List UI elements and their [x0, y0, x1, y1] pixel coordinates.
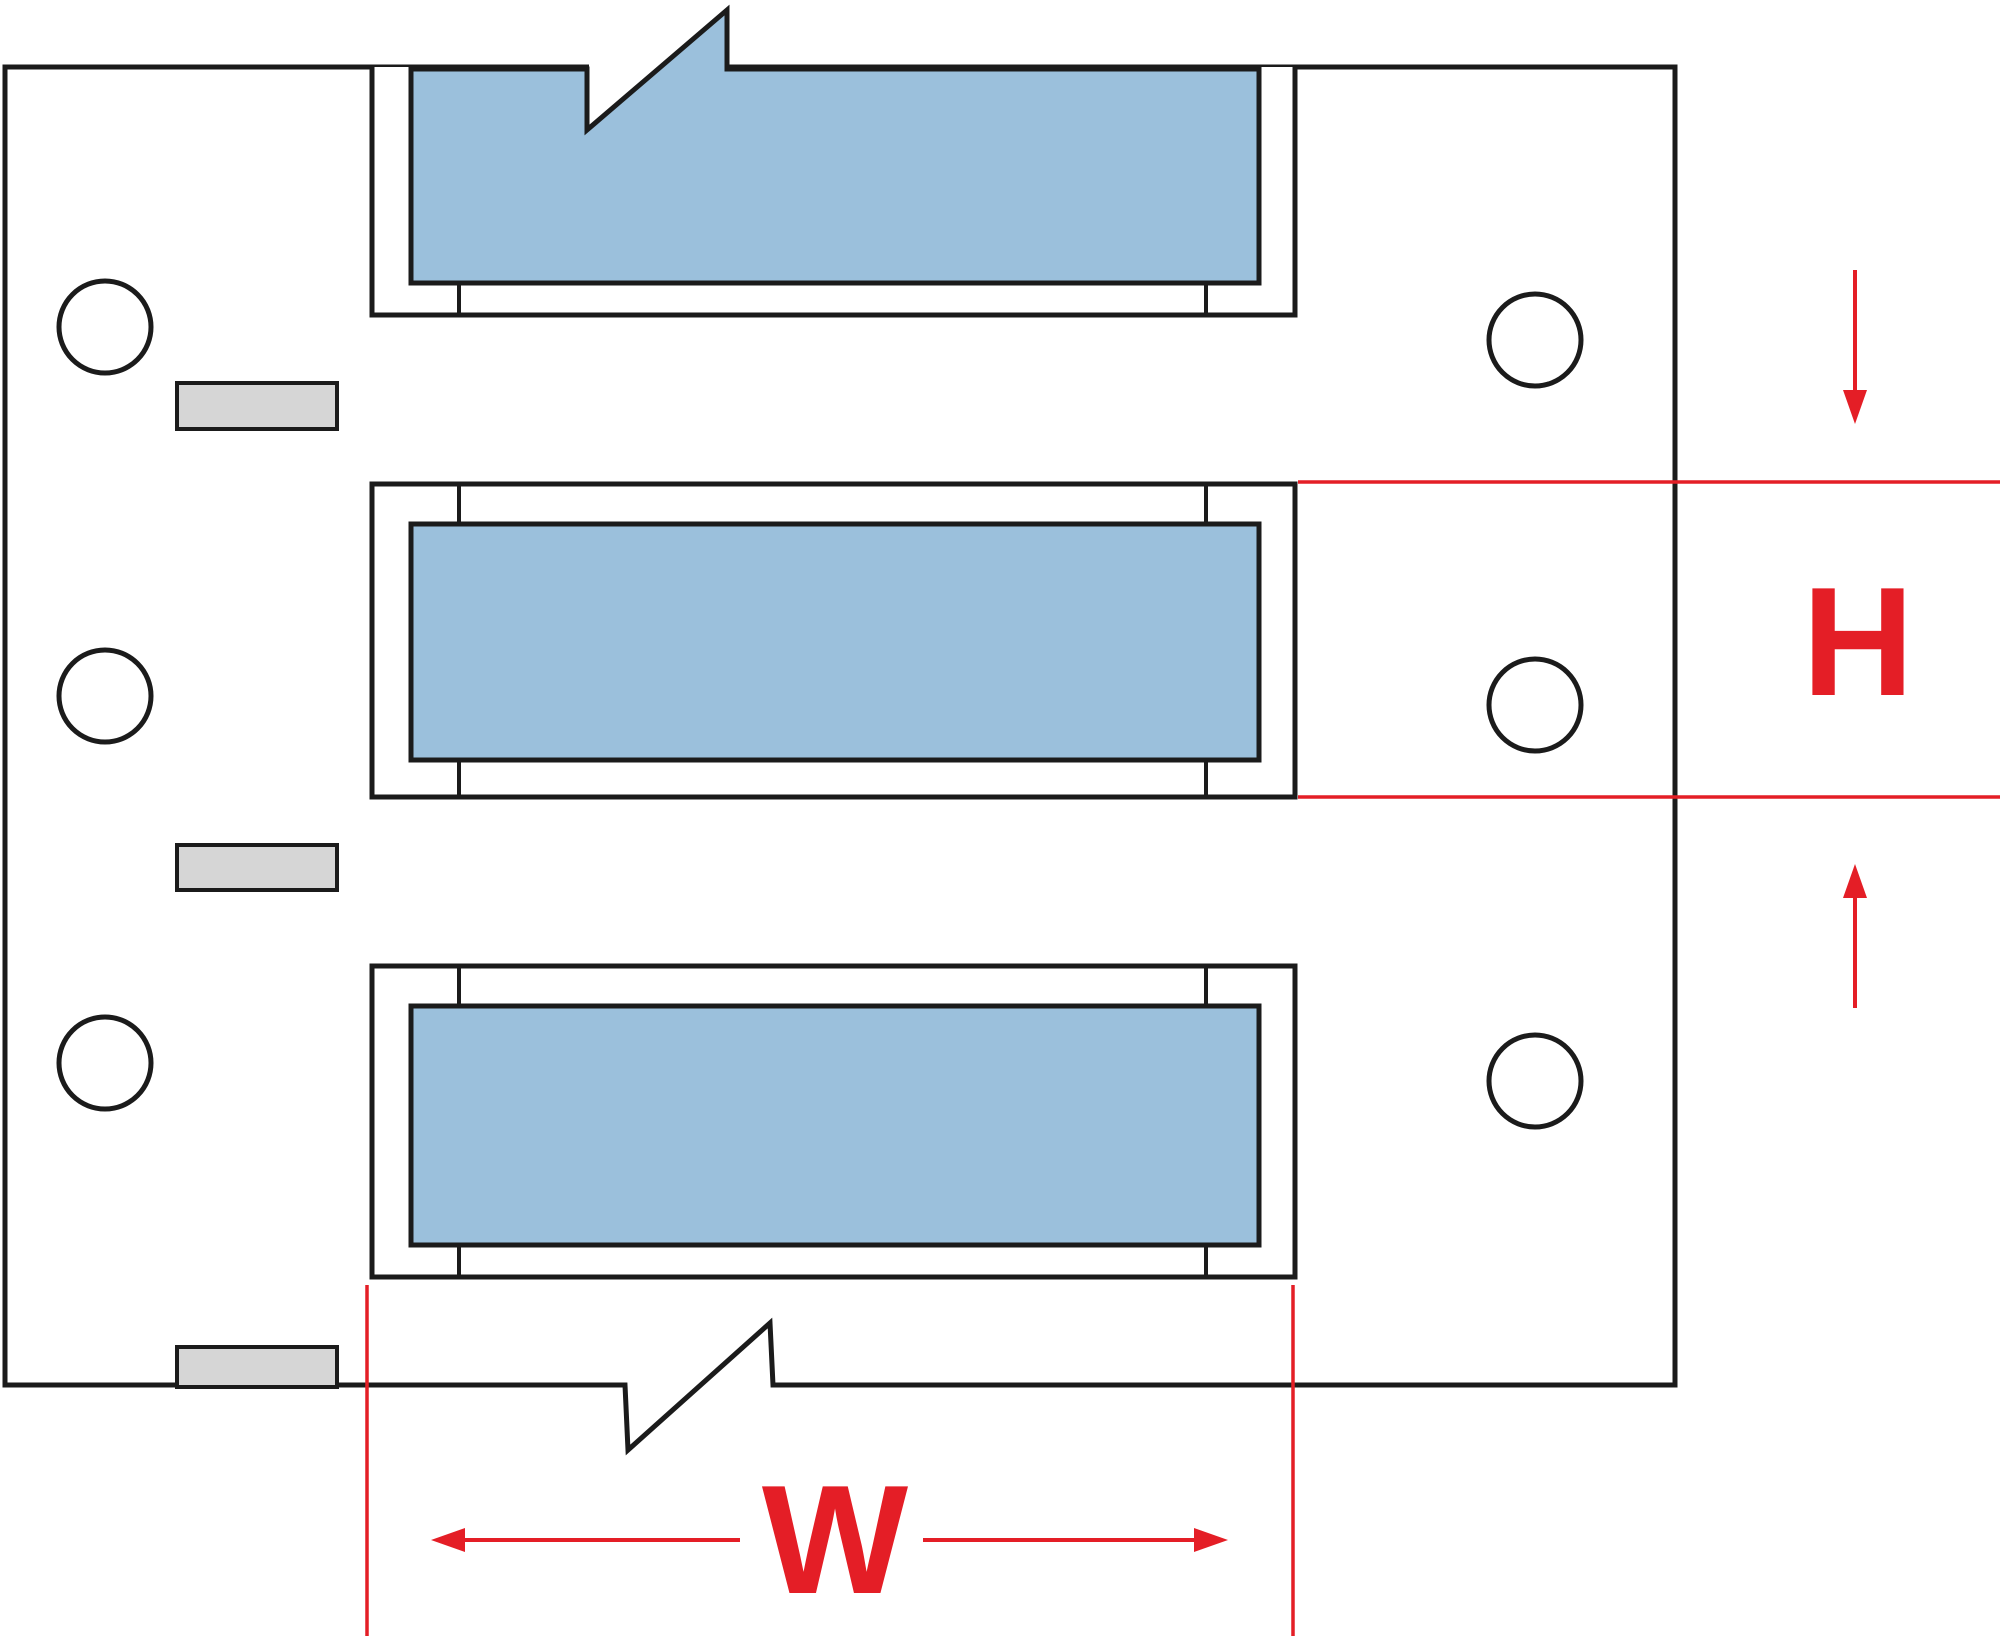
diagram-page: H W — [0, 0, 2000, 1636]
sleeve-marker — [411, 524, 1259, 760]
sleeve-marker — [411, 1006, 1259, 1245]
registration-mark — [177, 383, 337, 429]
width-dimension-label: W — [762, 1453, 909, 1626]
registration-mark — [177, 1347, 337, 1387]
up-arrow-head-icon — [1843, 864, 1867, 898]
registration-mark — [177, 845, 337, 890]
down-arrow-head-icon — [1843, 390, 1867, 424]
left-arrow-head-icon — [431, 1528, 465, 1552]
sleeve-row-middle — [372, 484, 1295, 797]
height-dimension-label: H — [1802, 555, 1914, 728]
sleeve-row-top — [372, 10, 1295, 315]
sleeve-dimension-diagram: H W — [0, 0, 2000, 1636]
sleeve-marker-with-break-zigzag — [411, 10, 1259, 283]
right-arrow-head-icon — [1194, 1528, 1228, 1552]
sleeve-row-bottom — [372, 966, 1295, 1277]
